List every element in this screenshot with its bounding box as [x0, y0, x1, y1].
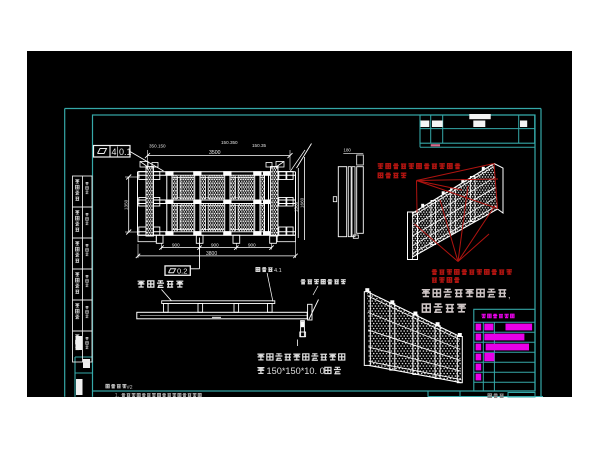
svg-text:0.1: 0.1 — [119, 147, 132, 157]
svg-text:4.1: 4.1 — [274, 268, 282, 274]
svg-text:900: 900 — [172, 243, 180, 248]
svg-text:900: 900 — [211, 243, 219, 248]
svg-text:3500: 3500 — [209, 150, 221, 156]
svg-text:#2: #2 — [127, 385, 133, 391]
svg-text:900: 900 — [248, 243, 256, 248]
svg-text:150.350: 150.350 — [221, 140, 238, 145]
svg-text:350.150: 350.150 — [149, 144, 166, 149]
svg-text:4: 4 — [112, 147, 117, 157]
svg-text:150.35: 150.35 — [252, 143, 266, 148]
svg-text:1.: 1. — [115, 393, 120, 399]
svg-text:1660: 1660 — [300, 197, 305, 208]
svg-text:1350: 1350 — [124, 199, 129, 210]
svg-text:0.2: 0.2 — [177, 266, 187, 275]
svg-text:1500: 1500 — [293, 201, 298, 212]
svg-text:180: 180 — [344, 148, 352, 153]
svg-text:,: , — [508, 290, 511, 300]
svg-text:3800: 3800 — [206, 251, 217, 257]
svg-text:150*150*10. 0: 150*150*10. 0 — [267, 366, 325, 376]
